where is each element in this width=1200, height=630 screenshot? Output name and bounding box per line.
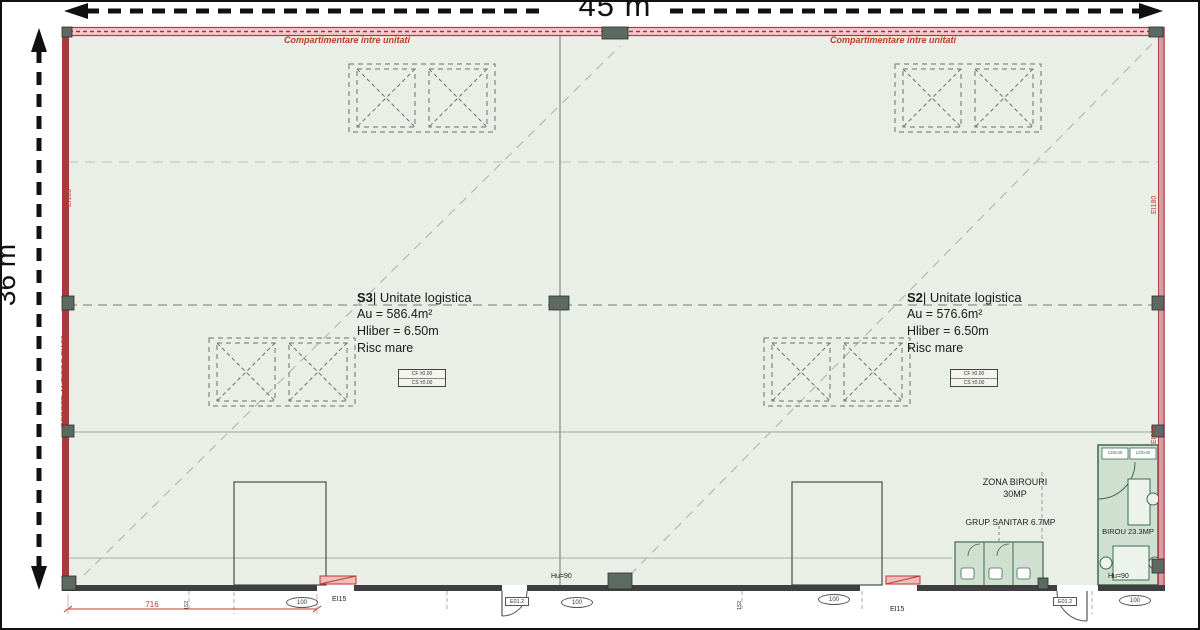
ei180-label-right-top: EI180 (1151, 196, 1158, 214)
door-tag-center: E01.2 (505, 597, 529, 606)
dim-oval-4: 100 (1119, 595, 1151, 606)
level-marker-s2: CF ±0.00 CS ±0.00 (950, 369, 998, 387)
ei180-label-left: EI180 (66, 189, 73, 207)
unit-s3-height: Hliber = 6.50m (357, 323, 547, 340)
floor-plan-page: 45 m 36 m Compartimentare intre unitati … (0, 0, 1200, 630)
unit-s3-area: Au = 586.4m² (357, 306, 547, 323)
level-marker-s3-line1: CF ±0.00 (399, 370, 445, 379)
width-dimension-label: 45 m (550, 0, 680, 24)
office-room (1098, 445, 1161, 585)
unit-s2-risk: Risc mare (907, 340, 1097, 357)
unit-s3-title: S3| Unitate logistica (357, 289, 547, 306)
zona-birouri-line2: 30MP (960, 488, 1070, 500)
level-marker-s3-line2: CS ±0.00 (399, 379, 445, 387)
ei180-label-right-mid: EI180 (1151, 426, 1158, 444)
dim-oval-1: 100 (286, 597, 318, 608)
unit-s2-name: | Unitate logistica (923, 290, 1022, 305)
unit-s2-title: S2| Unitate logistica (907, 289, 1097, 306)
cabinet-label-1: 120x40 (1102, 450, 1128, 455)
dim-oval-3: 100 (818, 594, 850, 605)
desk (1128, 479, 1150, 525)
compartimentare-label-left: Compartimentare intre unitati (284, 35, 410, 45)
level-marker-s2-line1: CF ±0.00 (951, 370, 997, 379)
compartimentare-label-right: Compartimentare intre unitati (830, 35, 956, 45)
unit-s3-id: S3 (357, 290, 373, 305)
chair (1100, 557, 1112, 569)
zona-birouri-line1: ZONA BIROURI (960, 476, 1070, 488)
zona-birouri-label: ZONA BIROURI 30MP (960, 476, 1070, 500)
door-height-center: Hu=90 (551, 573, 572, 580)
unit-s3-info: S3| Unitate logistica Au = 586.4m² Hlibe… (357, 289, 547, 357)
fire-door-label-right: EI15 (890, 606, 904, 613)
toilet (989, 568, 1002, 579)
unit-s2-info: S2| Unitate logistica Au = 576.6m² Hlibe… (907, 289, 1097, 357)
fire-door-label-left: EI15 (332, 596, 346, 603)
level-marker-s3: CF ±0.00 CS ±0.00 (398, 369, 446, 387)
sanitary-block (955, 542, 1043, 587)
small-dim-b: 152 (737, 601, 743, 610)
dim-oval-2: 100 (561, 597, 593, 608)
unit-s2-area: Au = 576.6m² (907, 306, 1097, 323)
chair (1147, 493, 1159, 505)
birou-label: BIROU 23.3MP (1096, 526, 1160, 538)
toilet (1017, 568, 1030, 579)
door-height-office: Hu=90 (1108, 573, 1129, 580)
red-dim-label: 716 (127, 600, 177, 609)
unit-s2-id: S2 (907, 290, 923, 305)
firewall-label: PERETE ANTIFOC EI180 (60, 335, 69, 427)
grup-sanitar-label: GRUP SANITAR 6.7MP (948, 516, 1073, 528)
level-marker-s2-line2: CS ±0.00 (951, 379, 997, 387)
cabinet-label-2: 120x40 (1130, 450, 1156, 455)
height-dimension-label: 36 m (0, 230, 22, 320)
red-dimension (64, 594, 321, 614)
door-tag-office: E01.2 (1053, 597, 1077, 606)
unit-s3-risk: Risc mare (357, 340, 547, 357)
unit-s3-name: | Unitate logistica (373, 290, 472, 305)
small-dim-a: 152 (184, 601, 190, 610)
toilet (961, 568, 974, 579)
unit-s2-height: Hliber = 6.50m (907, 323, 1097, 340)
